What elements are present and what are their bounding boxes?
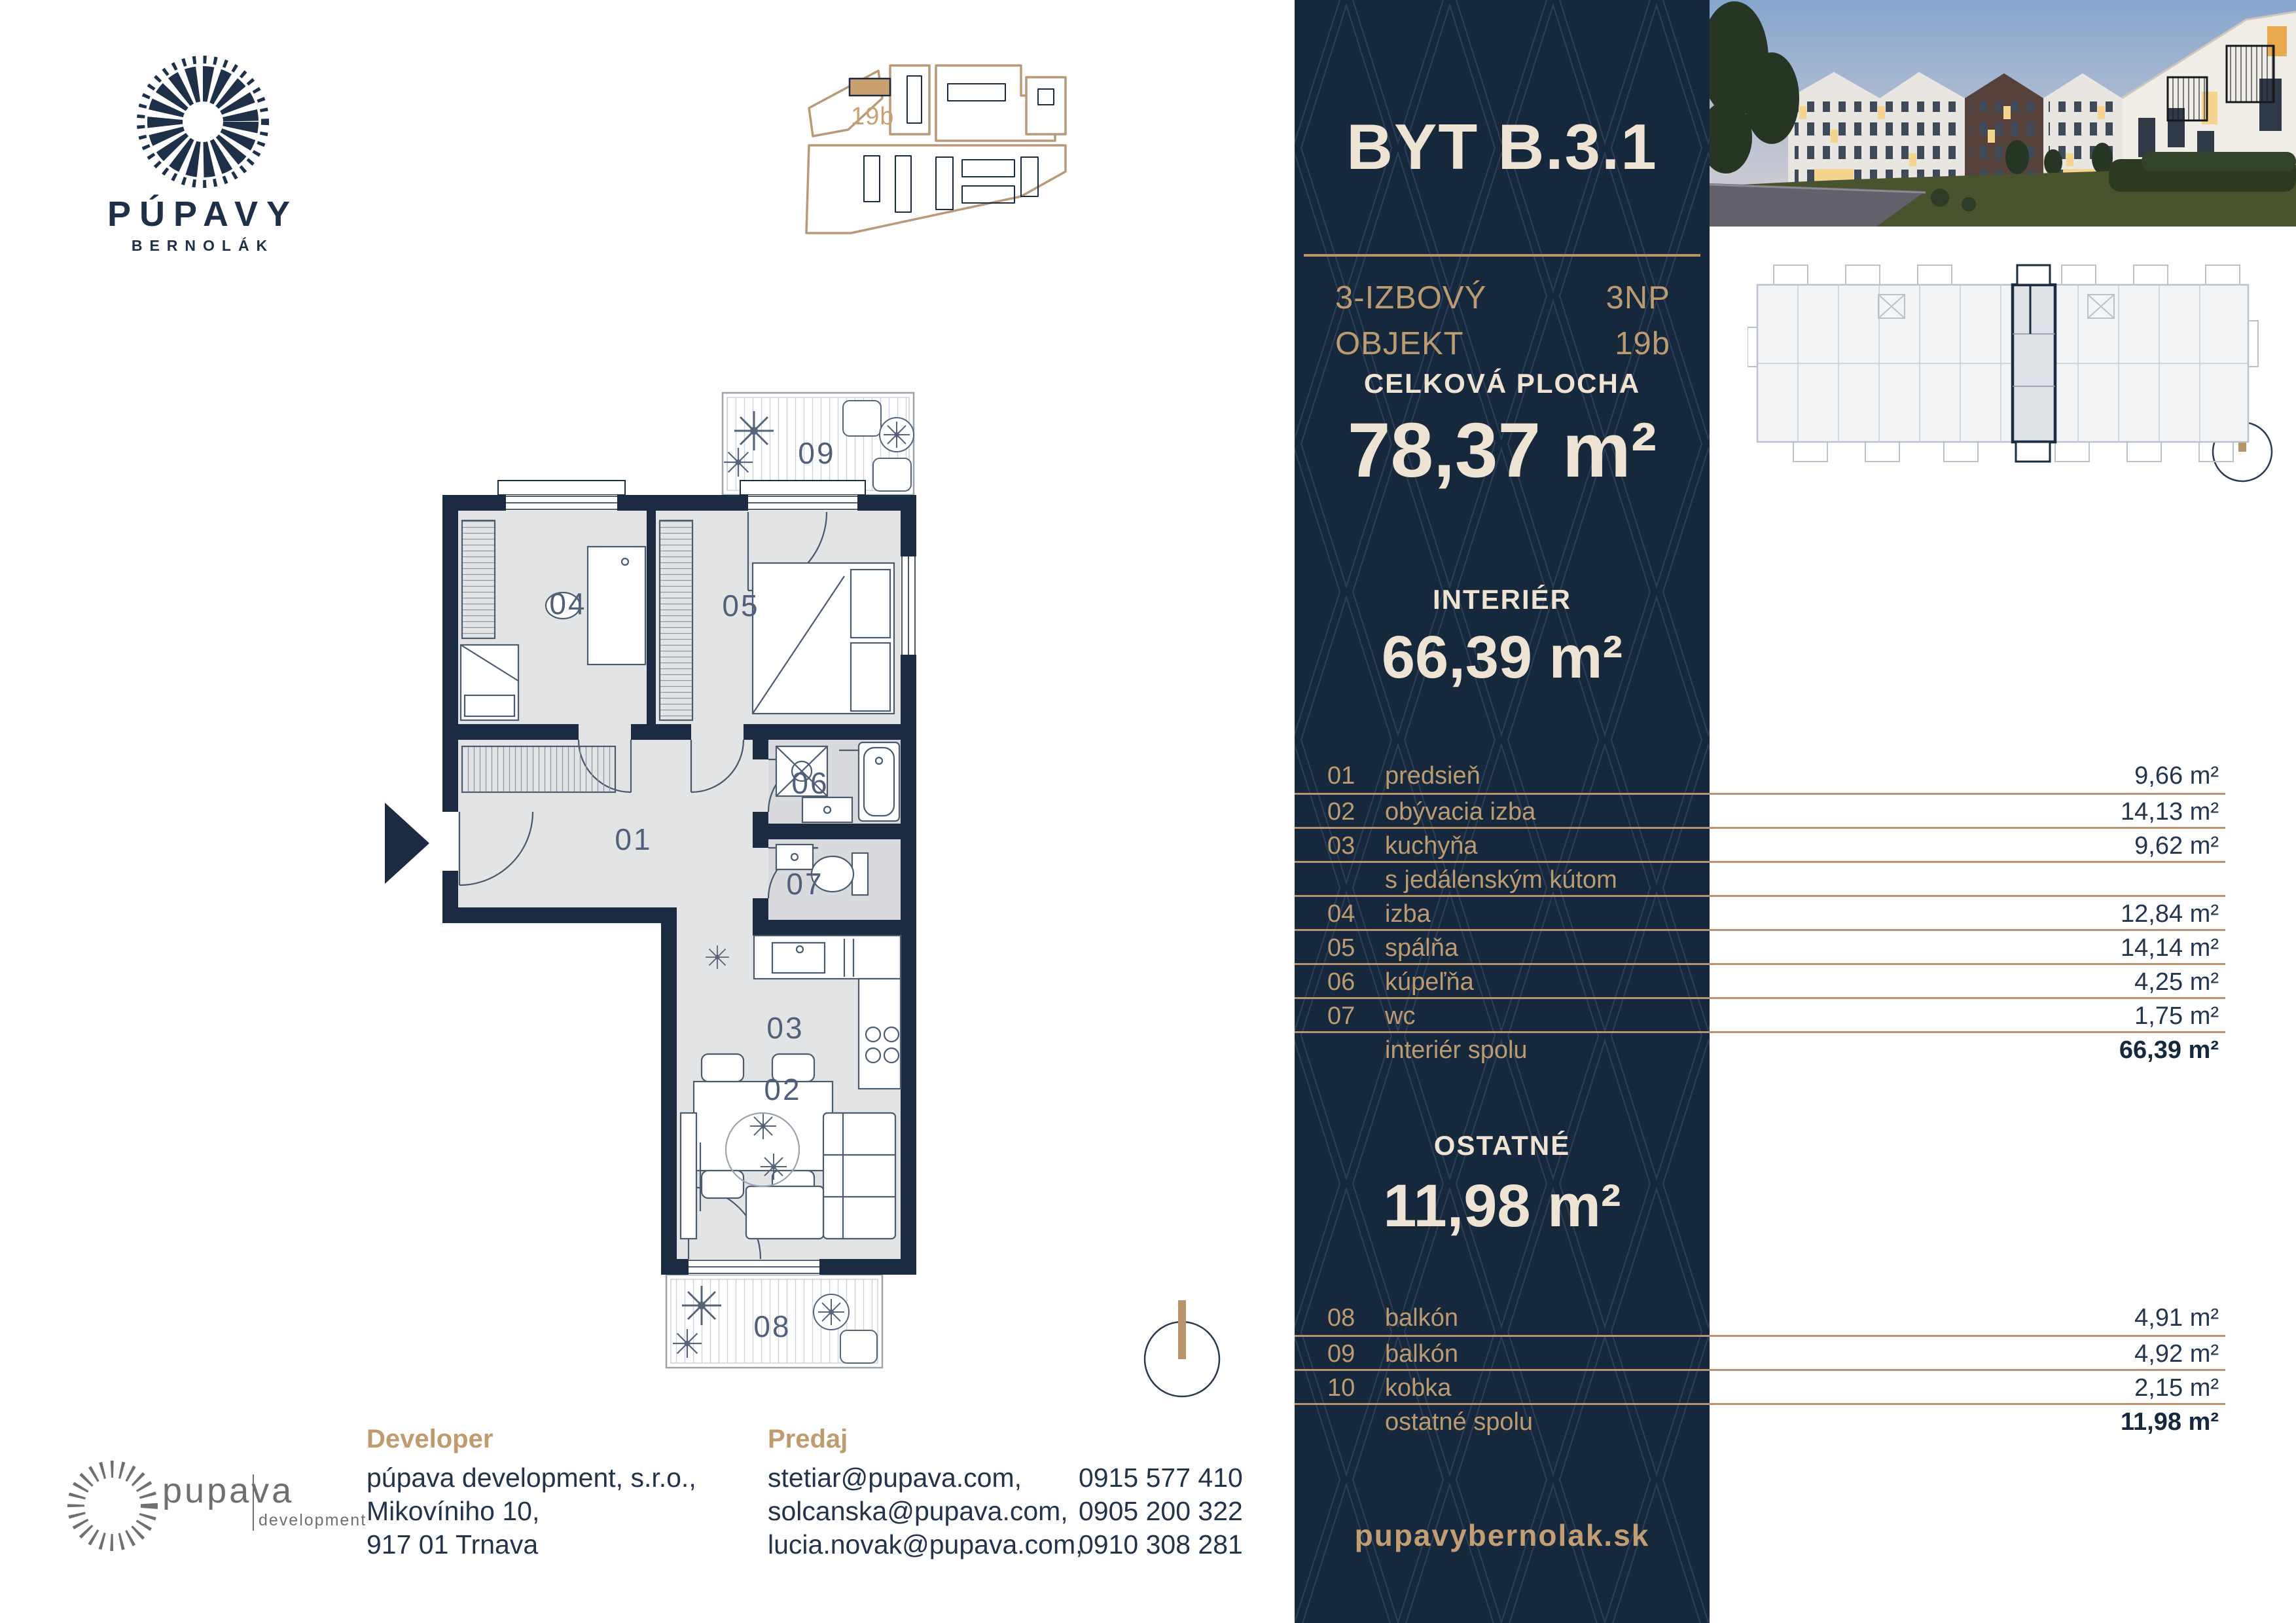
table-row: 06kúpeľňa4,25 m² xyxy=(1295,963,2225,997)
row-label: balkón xyxy=(1385,1337,2022,1369)
row-num xyxy=(1327,863,1385,895)
row-num: 05 xyxy=(1327,931,1385,963)
row-label: kuchyňa xyxy=(1385,829,2022,861)
sales-phone[interactable]: 0910 308 281 xyxy=(1079,1528,1243,1561)
row-num: 04 xyxy=(1327,897,1385,929)
row-num: 01 xyxy=(1327,759,1385,793)
room-label-04: 04 xyxy=(549,587,586,621)
developer-heading: Developer xyxy=(367,1425,493,1454)
sales-email[interactable]: solcanska@pupava.com, xyxy=(768,1495,1083,1528)
room-label-05: 05 xyxy=(722,589,759,623)
sales-email[interactable]: lucia.novak@pupava.com, xyxy=(768,1528,1083,1561)
website-link[interactable]: pupavybernolak.sk xyxy=(1295,1518,1710,1553)
row-label: kúpeľňa xyxy=(1385,965,2022,997)
table-row: 08balkón4,91 m² xyxy=(1295,1301,2225,1335)
interior-value: 66,39 m² xyxy=(1295,623,1710,692)
table-row: 04izba12,84 m² xyxy=(1295,895,2225,929)
row-value xyxy=(2022,863,2225,895)
room-label-01: 01 xyxy=(615,822,652,856)
sales-email[interactable]: stetiar@pupava.com, xyxy=(768,1461,1083,1495)
brand-wordmark: PÚPAVY xyxy=(79,194,327,234)
row-value: 14,13 m² xyxy=(2022,795,2225,827)
table-row: 03kuchyňa9,62 m² xyxy=(1295,827,2225,861)
interior-table: 01predsieň9,66 m² 02obývacia izba14,13 m… xyxy=(1295,759,2225,1065)
dev-logo-icon xyxy=(76,1469,149,1542)
total-area-value: 78,37 m² xyxy=(1295,406,1710,495)
row-num: 07 xyxy=(1327,999,1385,1031)
row-num: 10 xyxy=(1327,1371,1385,1403)
row-value: 9,66 m² xyxy=(2022,759,2225,793)
room-label-06: 06 xyxy=(791,766,829,800)
unit-title: BYT B.3.1 xyxy=(1295,110,1710,184)
row-value: 1,75 m² xyxy=(2022,999,2225,1031)
developer-company: púpava development, s.r.o., xyxy=(367,1461,696,1495)
site-plan: 19b xyxy=(806,65,1066,233)
dev-logo-wordmark: pupava xyxy=(162,1470,294,1511)
row-value: 12,84 m² xyxy=(2022,897,2225,929)
row-value: 2,15 m² xyxy=(2022,1371,2225,1403)
row-num xyxy=(1327,1033,1385,1065)
row-label: balkón xyxy=(1385,1301,2022,1335)
unit-type: 3-IZBOVÝ OBJEKT xyxy=(1335,275,1486,367)
brand-subtitle: BERNOLÁK xyxy=(79,237,327,255)
row-label: spálňa xyxy=(1385,931,2022,963)
building-photo xyxy=(1710,0,2296,227)
entrance-arrow-icon xyxy=(385,803,429,884)
row-value: 4,91 m² xyxy=(2022,1301,2225,1335)
row-num: 06 xyxy=(1327,965,1385,997)
row-value: 14,14 m² xyxy=(2022,931,2225,963)
row-num: 02 xyxy=(1327,795,1385,827)
unit-location: 3NP 19b xyxy=(1480,275,1670,367)
table-row: 07wc1,75 m² xyxy=(1295,997,2225,1031)
developer-info: púpava development, s.r.o., Mikovíniho 1… xyxy=(367,1461,696,1561)
room-label-02: 02 xyxy=(764,1072,801,1106)
unit-building: 19b xyxy=(1480,321,1670,367)
sales-phone[interactable]: 0915 577 410 xyxy=(1079,1461,1243,1495)
site-plan-building-label: 19b xyxy=(851,103,894,130)
other-label: OSTATNÉ xyxy=(1295,1130,1710,1161)
developer-street: Mikovíniho 10, xyxy=(367,1495,696,1528)
unit-floor: 3NP xyxy=(1480,275,1670,321)
table-row: 02obývacia izba14,13 m² xyxy=(1295,793,2225,827)
other-table: 08balkón4,91 m² 09balkón4,92 m² 10kobka2… xyxy=(1295,1301,2225,1437)
row-label: s jedálenským kútom xyxy=(1385,863,2022,895)
unit-type-line2: OBJEKT xyxy=(1335,321,1486,367)
floor-plan: 01 02 03 04 05 06 07 08 09 xyxy=(385,393,916,1368)
row-label: kobka xyxy=(1385,1371,2022,1403)
row-label: ostatné spolu xyxy=(1385,1405,2022,1437)
floor-overview-plan xyxy=(1748,255,2265,475)
sales-phone[interactable]: 0905 200 322 xyxy=(1079,1495,1243,1528)
sales-emails: stetiar@pupava.com, solcanska@pupava.com… xyxy=(768,1461,1083,1561)
interior-label: INTERIÉR xyxy=(1295,584,1710,615)
north-indicator-left xyxy=(1145,1300,1219,1396)
title-divider xyxy=(1304,254,1700,257)
row-label: izba xyxy=(1385,897,2022,929)
room-label-09: 09 xyxy=(798,436,835,470)
dev-logo-divider xyxy=(253,1474,254,1531)
row-label: obývacia izba xyxy=(1385,795,2022,827)
total-area-label: CELKOVÁ PLOCHA xyxy=(1295,368,1710,399)
room-label-07: 07 xyxy=(786,867,823,901)
table-row: 09balkón4,92 m² xyxy=(1295,1335,2225,1369)
sales-phones: 0915 577 410 0905 200 322 0910 308 281 xyxy=(1079,1461,1243,1561)
table-row: 01predsieň9,66 m² xyxy=(1295,759,2225,793)
developer-city: 917 01 Trnava xyxy=(367,1528,696,1561)
row-value: 11,98 m² xyxy=(2022,1405,2225,1437)
row-label: interiér spolu xyxy=(1385,1033,2022,1065)
room-label-08: 08 xyxy=(753,1309,791,1343)
unit-type-line1: 3-IZBOVÝ xyxy=(1335,275,1486,321)
row-num: 03 xyxy=(1327,829,1385,861)
row-value: 4,92 m² xyxy=(2022,1337,2225,1369)
table-row: s jedálenským kútom xyxy=(1295,861,2225,895)
table-row-total: ostatné spolu11,98 m² xyxy=(1295,1403,2225,1437)
sales-heading: Predaj xyxy=(768,1425,848,1454)
row-value: 66,39 m² xyxy=(2022,1033,2225,1065)
table-row: 10kobka2,15 m² xyxy=(1295,1369,2225,1403)
row-label: wc xyxy=(1385,999,2022,1031)
overview-highlighted-unit xyxy=(2013,265,2055,462)
row-label: predsieň xyxy=(1385,759,2022,793)
row-num: 09 xyxy=(1327,1337,1385,1369)
row-num xyxy=(1327,1405,1385,1437)
row-value: 4,25 m² xyxy=(2022,965,2225,997)
brochure-page: 19b xyxy=(0,0,2296,1623)
row-value: 9,62 m² xyxy=(2022,829,2225,861)
pupavy-logo-icon xyxy=(141,60,265,184)
table-row: 05spálňa14,14 m² xyxy=(1295,929,2225,963)
table-row-total: interiér spolu66,39 m² xyxy=(1295,1031,2225,1065)
room-label-03: 03 xyxy=(766,1011,804,1045)
site-plan-highlighted-building xyxy=(850,79,890,96)
other-value: 11,98 m² xyxy=(1295,1172,1710,1241)
row-num: 08 xyxy=(1327,1301,1385,1335)
dev-logo-subtitle: development xyxy=(259,1511,367,1530)
